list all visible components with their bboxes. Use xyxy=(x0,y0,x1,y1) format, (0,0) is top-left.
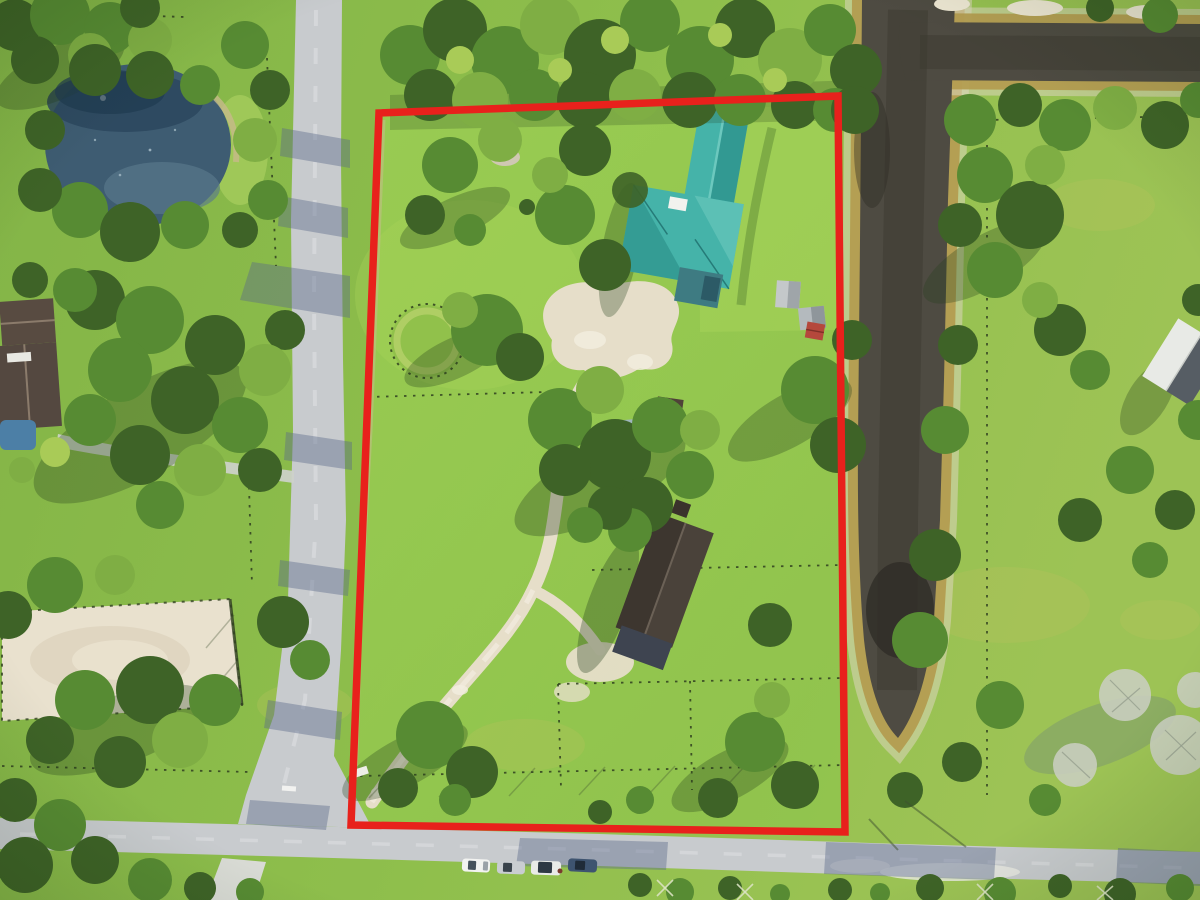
aerial-photo xyxy=(0,0,1200,900)
vignette xyxy=(0,0,1200,900)
aerial-photo-canvas xyxy=(0,0,1200,900)
